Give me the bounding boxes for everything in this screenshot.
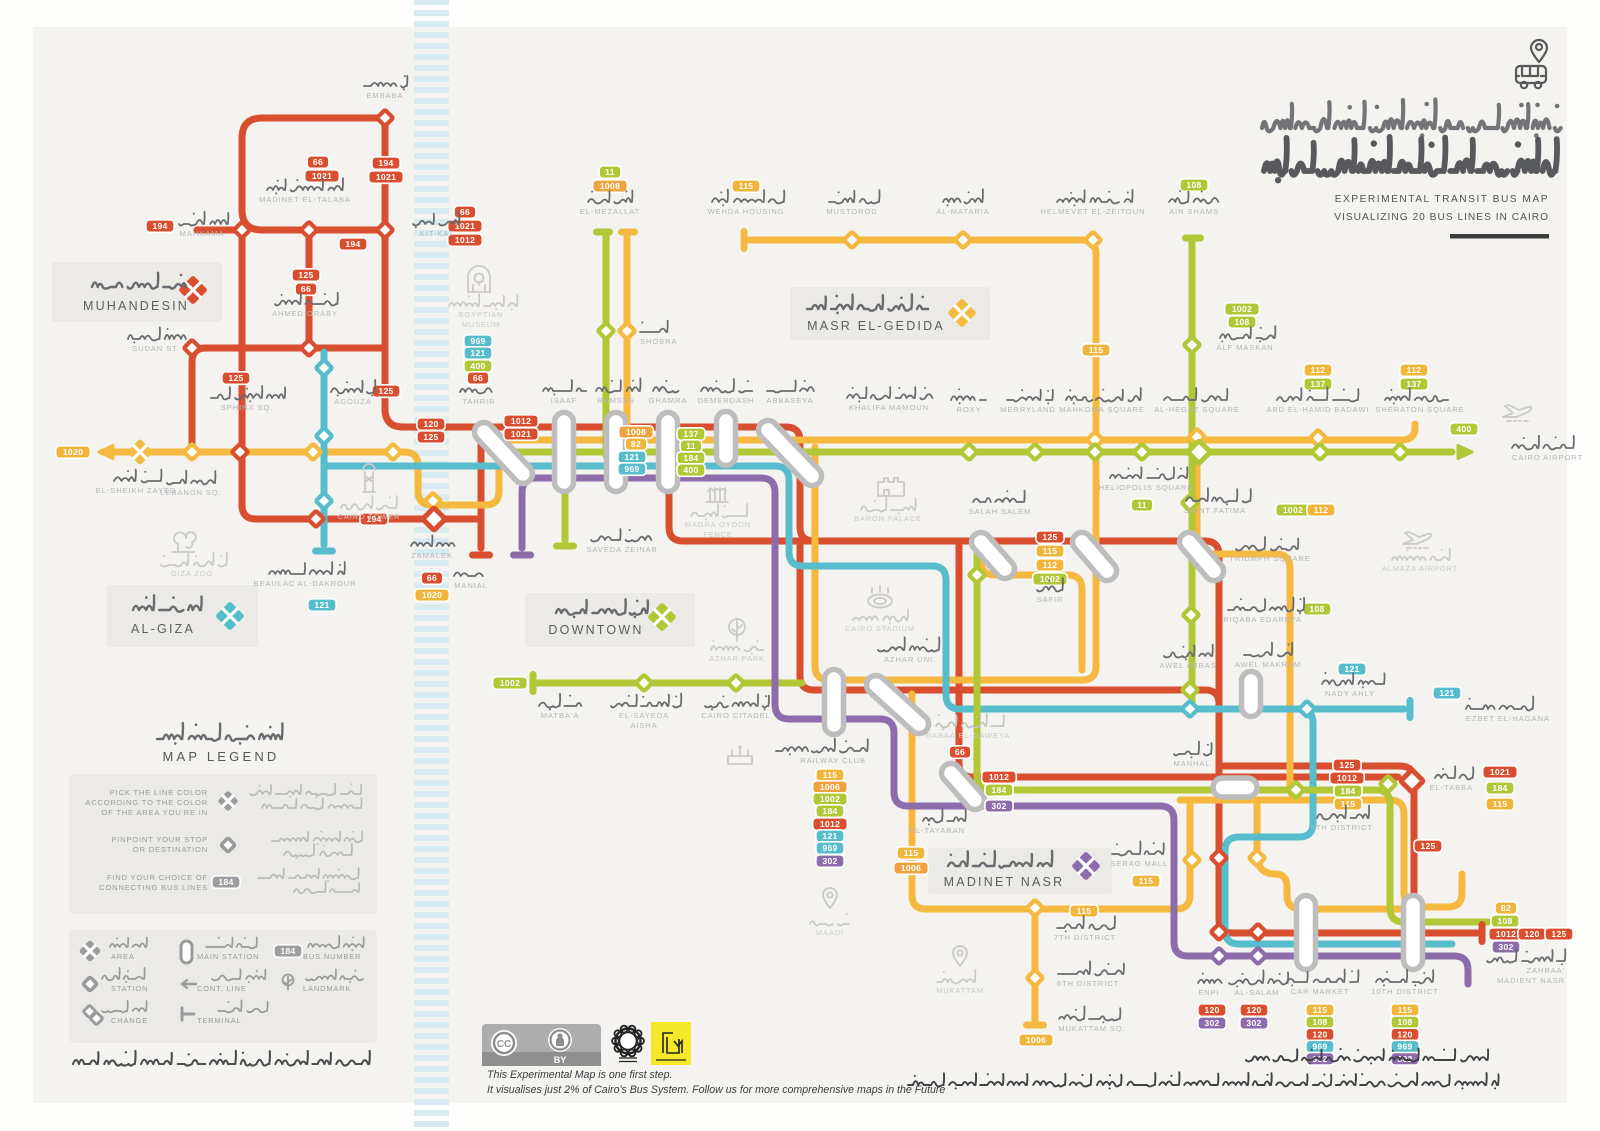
svg-text:CAIRO AIRPORT: CAIRO AIRPORT bbox=[1512, 453, 1583, 462]
svg-text:EL-SAYEDA: EL-SAYEDA bbox=[619, 711, 669, 720]
svg-text:121: 121 bbox=[624, 452, 639, 462]
svg-text:115: 115 bbox=[823, 770, 838, 780]
svg-text:EL-TAYARAN: EL-TAYARAN bbox=[910, 826, 965, 835]
svg-text:AGOUZA: AGOUZA bbox=[334, 397, 372, 406]
svg-text:MUKATTAM SQ.: MUKATTAM SQ. bbox=[1058, 1024, 1125, 1033]
svg-text:302: 302 bbox=[1204, 1018, 1219, 1028]
svg-text:ZAMALEK: ZAMALEK bbox=[411, 551, 453, 560]
svg-text:ABD EL-HAMID BADAWI: ABD EL-HAMID BADAWI bbox=[1267, 405, 1370, 414]
svg-text:SAFIR: SAFIR bbox=[1037, 595, 1064, 604]
svg-text:MERRYLAND: MERRYLAND bbox=[1000, 405, 1056, 414]
svg-text:MADINET EL-TALABA: MADINET EL-TALABA bbox=[259, 195, 351, 204]
svg-text:115: 115 bbox=[1398, 1005, 1413, 1015]
svg-text:VISUALIZING 20 BUS LINES IN CA: VISUALIZING 20 BUS LINES IN CAIRO bbox=[1334, 212, 1549, 223]
svg-text:MUKATTAM: MUKATTAM bbox=[936, 986, 984, 995]
svg-text:BUS NUMBER: BUS NUMBER bbox=[303, 952, 361, 961]
svg-text:AIN SHAMS: AIN SHAMS bbox=[1169, 207, 1219, 216]
svg-text:HELIOPOLIS SQUARE: HELIOPOLIS SQUARE bbox=[1099, 483, 1194, 492]
svg-text:CAIRO TOWER: CAIRO TOWER bbox=[338, 512, 401, 521]
svg-text:1002: 1002 bbox=[1040, 574, 1060, 584]
svg-text:RABAA EL-DAWEYA: RABAA EL-DAWEYA bbox=[926, 731, 1011, 740]
svg-text:969: 969 bbox=[470, 336, 485, 346]
svg-text:MAP LEGEND: MAP LEGEND bbox=[162, 749, 279, 764]
svg-text:108: 108 bbox=[1497, 916, 1512, 926]
svg-text:EXPERIMENTAL TRANSIT BUS MAP: EXPERIMENTAL TRANSIT BUS MAP bbox=[1335, 194, 1549, 205]
svg-text:SPHINX SQ.: SPHINX SQ. bbox=[221, 403, 273, 412]
svg-text:1006: 1006 bbox=[901, 863, 921, 873]
svg-text:TAHRIR: TAHRIR bbox=[462, 397, 495, 406]
svg-text:KHALIFA MAMOUN: KHALIFA MAMOUN bbox=[849, 403, 929, 412]
svg-text:125: 125 bbox=[1420, 841, 1435, 851]
svg-text:EL-TABBA: EL-TABBA bbox=[1430, 783, 1473, 792]
svg-text:108: 108 bbox=[1312, 1017, 1327, 1027]
svg-text:AL-GIZA: AL-GIZA bbox=[131, 622, 195, 636]
svg-text:MANIAL: MANIAL bbox=[454, 581, 488, 590]
svg-text:121: 121 bbox=[314, 600, 329, 610]
svg-text:11: 11 bbox=[1137, 500, 1147, 510]
svg-text:CHANGE: CHANGE bbox=[111, 1016, 148, 1025]
svg-text:ACCORDING TO THE COLOR: ACCORDING TO THE COLOR bbox=[85, 798, 208, 807]
svg-text:121: 121 bbox=[1344, 664, 1359, 674]
svg-text:194: 194 bbox=[152, 221, 167, 231]
svg-text:SHERATON SQUARE: SHERATON SQUARE bbox=[1375, 405, 1464, 414]
svg-text:66: 66 bbox=[301, 284, 311, 294]
svg-text:112: 112 bbox=[1407, 365, 1422, 375]
svg-text:66: 66 bbox=[955, 747, 965, 757]
svg-text:115: 115 bbox=[1341, 799, 1356, 809]
svg-text:1008: 1008 bbox=[626, 427, 646, 437]
svg-text:MAHKOMA SQUARE: MAHKOMA SQUARE bbox=[1059, 405, 1145, 414]
svg-text:969: 969 bbox=[1312, 1042, 1327, 1052]
svg-text:120: 120 bbox=[1246, 1005, 1261, 1015]
svg-text:125: 125 bbox=[1042, 532, 1057, 542]
svg-text:1021: 1021 bbox=[511, 429, 531, 439]
svg-text:1012: 1012 bbox=[1337, 773, 1357, 783]
svg-text:MAIN STATION: MAIN STATION bbox=[197, 952, 259, 961]
svg-text:969: 969 bbox=[624, 464, 639, 474]
svg-text:MUSEUM: MUSEUM bbox=[462, 320, 500, 329]
svg-text:120: 120 bbox=[423, 419, 438, 429]
svg-text:115: 115 bbox=[904, 848, 919, 858]
svg-text:125: 125 bbox=[1339, 760, 1354, 770]
svg-text:112: 112 bbox=[1043, 560, 1058, 570]
svg-text:66: 66 bbox=[473, 373, 483, 383]
svg-text:400: 400 bbox=[683, 465, 698, 475]
svg-text:EGYPTIAN: EGYPTIAN bbox=[459, 310, 504, 319]
svg-text:108: 108 bbox=[1397, 1017, 1412, 1027]
svg-text:1012: 1012 bbox=[511, 416, 531, 426]
svg-text:BEAULAC AL-DAKROUR: BEAULAC AL-DAKROUR bbox=[253, 579, 356, 588]
svg-text:969: 969 bbox=[822, 843, 837, 853]
svg-text:108: 108 bbox=[1309, 604, 1324, 614]
svg-text:125: 125 bbox=[423, 432, 438, 442]
svg-text:400: 400 bbox=[470, 361, 485, 371]
svg-text:WEHDA HOUSING: WEHDA HOUSING bbox=[707, 207, 784, 216]
svg-text:GHAMRA: GHAMRA bbox=[649, 396, 688, 405]
svg-text:AL-HEGAZ SQUARE: AL-HEGAZ SQUARE bbox=[1154, 405, 1240, 414]
svg-text:137: 137 bbox=[683, 429, 698, 439]
svg-text:CC: CC bbox=[497, 1039, 511, 1050]
svg-text:1006: 1006 bbox=[820, 782, 840, 792]
svg-text:121: 121 bbox=[470, 348, 485, 358]
svg-text:125: 125 bbox=[1551, 929, 1566, 939]
svg-text:82: 82 bbox=[1501, 903, 1511, 913]
svg-text:STATION: STATION bbox=[111, 984, 148, 993]
svg-text:112: 112 bbox=[1314, 505, 1329, 515]
svg-text:GIZA ZOO: GIZA ZOO bbox=[171, 569, 213, 578]
svg-text:TRIUMPH SQUARE: TRIUMPH SQUARE bbox=[1229, 554, 1310, 563]
svg-text:115: 115 bbox=[739, 181, 754, 191]
svg-text:121: 121 bbox=[822, 831, 837, 841]
svg-text:MUHANDESIN: MUHANDESIN bbox=[83, 299, 189, 313]
svg-text:66: 66 bbox=[460, 207, 470, 217]
svg-text:ALMAZA AIRPORT: ALMAZA AIRPORT bbox=[1382, 564, 1458, 573]
svg-text:184: 184 bbox=[1340, 786, 1355, 796]
svg-text:184: 184 bbox=[1492, 783, 1507, 793]
svg-text:SUDAN ST.: SUDAN ST. bbox=[132, 344, 180, 353]
svg-text:82: 82 bbox=[631, 439, 641, 449]
svg-text:AHMED ORABY: AHMED ORABY bbox=[272, 309, 338, 318]
svg-text:8TH DISTRICT: 8TH DISTRICT bbox=[1311, 823, 1373, 832]
svg-text:10TH DISTRICT: 10TH DISTRICT bbox=[1371, 987, 1438, 996]
svg-text:RIQABA EDAREYA: RIQABA EDAREYA bbox=[1223, 615, 1302, 624]
svg-text:115: 115 bbox=[1493, 799, 1508, 809]
svg-text:AZHAR PARK: AZHAR PARK bbox=[709, 654, 765, 663]
svg-text:1021: 1021 bbox=[1490, 767, 1510, 777]
svg-text:KIT-KAT: KIT-KAT bbox=[420, 229, 454, 238]
svg-text:1012: 1012 bbox=[820, 819, 840, 829]
svg-text:MATBA'A: MATBA'A bbox=[541, 711, 579, 720]
svg-text:115: 115 bbox=[1043, 546, 1058, 556]
svg-text:CAR MARKET: CAR MARKET bbox=[1291, 987, 1350, 996]
svg-text:SAVEDA ZEINAB: SAVEDA ZEINAB bbox=[586, 545, 657, 554]
svg-text:120: 120 bbox=[1312, 1029, 1327, 1039]
svg-text:BY: BY bbox=[554, 1055, 567, 1065]
svg-text:302: 302 bbox=[991, 801, 1006, 811]
svg-text:SALAH SALEM: SALAH SALEM bbox=[969, 507, 1032, 516]
svg-text:6TH DISTRICT: 6TH DISTRICT bbox=[1057, 979, 1119, 988]
svg-text:66: 66 bbox=[427, 573, 437, 583]
svg-text:115: 115 bbox=[1089, 345, 1104, 355]
svg-text:11: 11 bbox=[605, 167, 615, 177]
svg-text:PICK THE LINE COLOR: PICK THE LINE COLOR bbox=[110, 788, 208, 797]
svg-text:1006: 1006 bbox=[1026, 1035, 1046, 1045]
svg-text:ZAHRAA': ZAHRAA' bbox=[1526, 966, 1565, 975]
svg-text:AL-SALAM: AL-SALAM bbox=[1235, 988, 1280, 997]
svg-text:EL-MEZALLAT: EL-MEZALLAT bbox=[580, 207, 640, 216]
svg-text:1021: 1021 bbox=[376, 172, 396, 182]
svg-text:108: 108 bbox=[1186, 180, 1201, 190]
svg-text:1020: 1020 bbox=[63, 447, 83, 457]
svg-text:MAHKAMA: MAHKAMA bbox=[180, 229, 225, 238]
svg-text:SHOBRA: SHOBRA bbox=[640, 337, 678, 346]
svg-text:ABBASEYA: ABBASEYA bbox=[766, 396, 813, 405]
svg-text:NADY AHLY: NADY AHLY bbox=[1325, 689, 1375, 698]
svg-text:AREA: AREA bbox=[111, 952, 135, 961]
svg-text:FIND YOUR CHOICE OF: FIND YOUR CHOICE OF bbox=[107, 873, 208, 882]
svg-text:66: 66 bbox=[313, 157, 323, 167]
svg-text:SERAG MALL: SERAG MALL bbox=[1110, 859, 1168, 868]
svg-text:RAMSES: RAMSES bbox=[597, 396, 634, 405]
svg-text:CAIRO STADIUM: CAIRO STADIUM bbox=[845, 624, 915, 633]
svg-text:1012: 1012 bbox=[455, 235, 475, 245]
svg-text:184: 184 bbox=[822, 806, 837, 816]
svg-text:ROXY: ROXY bbox=[956, 405, 981, 414]
svg-text:137: 137 bbox=[1406, 379, 1421, 389]
svg-text:108: 108 bbox=[1234, 317, 1249, 327]
svg-text:7TH DISTRICT: 7TH DISTRICT bbox=[1054, 933, 1116, 942]
svg-text:RAILWAY CLUB: RAILWAY CLUB bbox=[800, 756, 866, 765]
svg-text:ENPI: ENPI bbox=[1198, 988, 1219, 997]
svg-text:MUSTOROD: MUSTOROD bbox=[826, 207, 877, 216]
svg-text:OF THE AREA YOU'RE IN: OF THE AREA YOU'RE IN bbox=[101, 808, 208, 817]
svg-text:115: 115 bbox=[1077, 906, 1092, 916]
svg-text:MASR EL-GEDIDA: MASR EL-GEDIDA bbox=[807, 319, 945, 333]
svg-text:AL-MATARIA: AL-MATARIA bbox=[936, 207, 989, 216]
svg-text:MAGRA OYOON: MAGRA OYOON bbox=[685, 520, 751, 529]
svg-text:SAINT FATIMA: SAINT FATIMA bbox=[1184, 506, 1246, 515]
svg-text:CONNECTING BUS LINES: CONNECTING BUS LINES bbox=[99, 883, 208, 892]
svg-text:184: 184 bbox=[683, 453, 698, 463]
svg-text:1002: 1002 bbox=[1283, 505, 1303, 515]
svg-text:194: 194 bbox=[378, 158, 393, 168]
svg-text:11: 11 bbox=[686, 441, 696, 451]
svg-text:BARON PALACE: BARON PALACE bbox=[854, 514, 922, 523]
svg-text:EMBABA: EMBABA bbox=[366, 91, 403, 100]
svg-text:121: 121 bbox=[1439, 688, 1454, 698]
svg-text:115: 115 bbox=[1313, 1005, 1328, 1015]
svg-text:MAADI: MAADI bbox=[816, 928, 844, 937]
svg-text:1008: 1008 bbox=[600, 181, 620, 191]
svg-text:1012: 1012 bbox=[989, 772, 1009, 782]
svg-text:This Experimental Map is one f: This Experimental Map is one first step. bbox=[487, 1069, 672, 1081]
svg-text:DOWNTOWN: DOWNTOWN bbox=[548, 623, 643, 637]
svg-text:OR DESTINATION: OR DESTINATION bbox=[133, 845, 208, 854]
svg-text:184: 184 bbox=[218, 877, 233, 887]
svg-text:TERMINAL: TERMINAL bbox=[197, 1016, 242, 1025]
svg-text:194: 194 bbox=[345, 239, 360, 249]
svg-text:125: 125 bbox=[298, 270, 313, 280]
svg-text:120: 120 bbox=[1204, 1005, 1219, 1015]
svg-text:1020: 1020 bbox=[422, 590, 442, 600]
svg-text:125: 125 bbox=[378, 386, 393, 396]
svg-text:120: 120 bbox=[1397, 1029, 1412, 1039]
svg-text:1002: 1002 bbox=[820, 794, 840, 804]
svg-text:EZBET EL-HAGANA: EZBET EL-HAGANA bbox=[1466, 714, 1550, 723]
svg-text:EL-SHEIKH ZAYED: EL-SHEIKH ZAYED bbox=[96, 486, 176, 495]
svg-text:125: 125 bbox=[228, 373, 243, 383]
svg-text:184: 184 bbox=[991, 785, 1006, 795]
svg-text:400: 400 bbox=[1456, 424, 1471, 434]
svg-text:MANHAL: MANHAL bbox=[1173, 759, 1210, 768]
svg-text:120: 120 bbox=[1524, 929, 1539, 939]
svg-text:LANDMARK: LANDMARK bbox=[303, 984, 351, 993]
svg-text:137: 137 bbox=[1310, 379, 1325, 389]
svg-text:1002: 1002 bbox=[1232, 304, 1252, 314]
svg-text:It visualises just 2% of Cairo: It visualises just 2% of Cairo's Bus Sys… bbox=[487, 1084, 945, 1096]
svg-text:AZHAR UNI.: AZHAR UNI. bbox=[884, 655, 936, 664]
svg-text:ALF MASKAN: ALF MASKAN bbox=[1216, 343, 1273, 352]
svg-text:CAIRO CITADEL: CAIRO CITADEL bbox=[701, 711, 770, 720]
svg-text:184: 184 bbox=[280, 946, 295, 956]
svg-text:AWEL MAKRAM: AWEL MAKRAM bbox=[1235, 660, 1301, 669]
svg-text:302: 302 bbox=[822, 856, 837, 866]
svg-text:FENCE: FENCE bbox=[703, 530, 733, 539]
svg-text:1002: 1002 bbox=[500, 678, 520, 688]
svg-text:MADINET NASR: MADINET NASR bbox=[944, 875, 1065, 889]
svg-text:302: 302 bbox=[1246, 1018, 1261, 1028]
svg-text:969: 969 bbox=[1397, 1042, 1412, 1052]
svg-text:115: 115 bbox=[1139, 876, 1154, 886]
svg-text:1021: 1021 bbox=[312, 171, 332, 181]
svg-text:PINPOINT YOUR STOP: PINPOINT YOUR STOP bbox=[111, 835, 208, 844]
svg-text:DEMERDASH: DEMERDASH bbox=[698, 396, 755, 405]
svg-text:CONT. LINE: CONT. LINE bbox=[197, 984, 247, 993]
svg-text:ISAAF: ISAAF bbox=[551, 396, 577, 405]
svg-text:HELMEVET EL-ZEITOUN: HELMEVET EL-ZEITOUN bbox=[1040, 207, 1145, 216]
svg-text:AISHA: AISHA bbox=[630, 721, 657, 730]
svg-text:1012: 1012 bbox=[1496, 929, 1516, 939]
svg-text:112: 112 bbox=[1311, 365, 1326, 375]
svg-text:MADIENT NASR: MADIENT NASR bbox=[1497, 976, 1565, 985]
svg-text:AWEL ABBAS: AWEL ABBAS bbox=[1160, 661, 1217, 670]
